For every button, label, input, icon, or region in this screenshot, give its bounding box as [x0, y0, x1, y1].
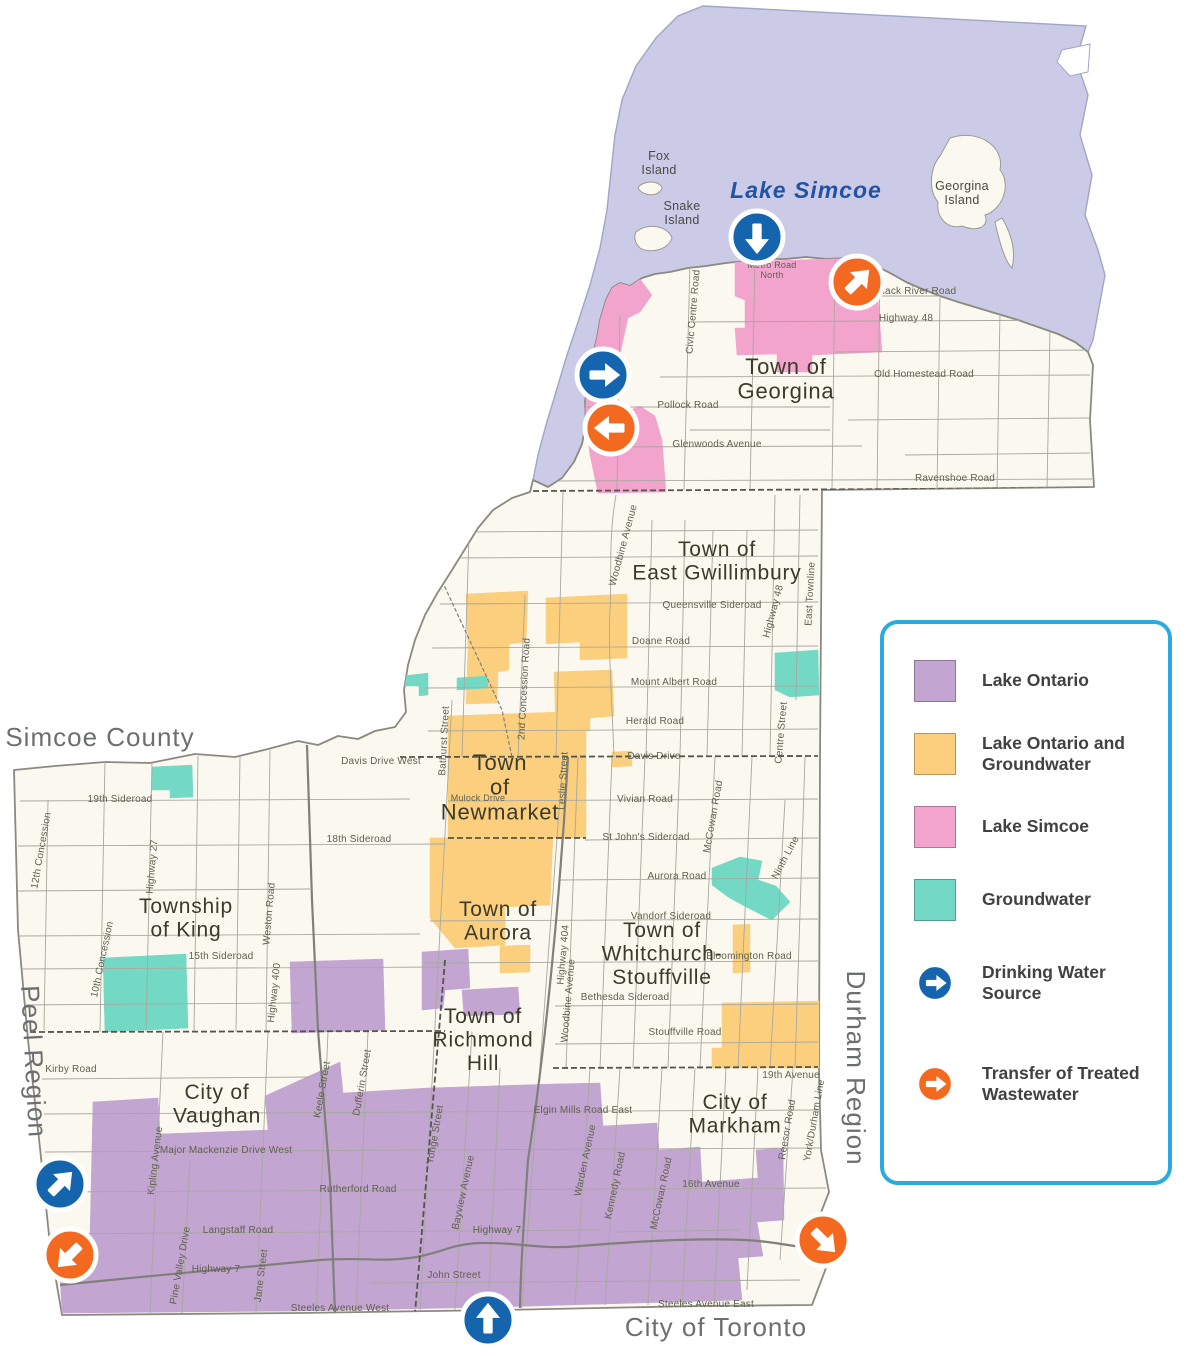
neighbouring-region-label: City of Toronto: [625, 1312, 807, 1342]
municipality-label: Town ofAurora: [459, 898, 537, 945]
transfer-of-treated-wastewater-arrow: [918, 1066, 953, 1101]
road-label: Davis Drive: [627, 751, 681, 762]
treated-wastewater-transfer-marker: [585, 402, 637, 454]
road-label: Ravenshoe Road: [915, 473, 995, 484]
lake-ontario-swatch: [914, 660, 956, 702]
road-label: Black River Road: [876, 286, 956, 297]
groundwater-swatch: [914, 879, 956, 921]
legend-label: Groundwater: [982, 889, 1091, 910]
road-label: John Street: [427, 1270, 480, 1281]
drinking-water-source-arrow: [918, 965, 953, 1000]
legend-item-lake-ontario: Lake Ontario: [914, 644, 1158, 717]
lake-ontario-source-area-area: [290, 959, 385, 1033]
road-label: Steeles Avenue East: [658, 1299, 754, 1310]
municipality-label: City ofVaughan: [173, 1081, 261, 1128]
road-label: St John's Sideroad: [602, 832, 689, 843]
road-label: Rutherford Road: [320, 1184, 397, 1195]
road-label: 18th Sideroad: [327, 834, 392, 845]
legend-label: Drinking WaterSource: [982, 962, 1106, 1003]
municipality-label: Townshipof King: [139, 895, 233, 942]
road-label: Elgin Mills Road East: [534, 1105, 633, 1116]
lake-ontario-and-groundwater-source-area-area: [500, 945, 530, 973]
neighbouring-region-label: Durham Region: [841, 970, 871, 1165]
road-label: Herald Road: [626, 716, 684, 727]
municipality-label: Town ofGeorgina: [738, 354, 835, 404]
legend-item-groundwater: Groundwater: [914, 863, 1158, 936]
road-label: Highway 7: [473, 1225, 522, 1236]
lake-ontario-and-groundwater-swatch: [914, 733, 956, 775]
map-stage: Metro RoadNorthBlack River RoadHighway 4…: [0, 0, 1200, 1357]
legend: Lake OntarioLake Ontario andGroundwaterL…: [880, 620, 1172, 1185]
road-label: Langstaff Road: [203, 1225, 273, 1236]
drinking-water-source-marker: [462, 1294, 514, 1346]
road-label: Bethesda Sideroad: [581, 992, 669, 1003]
lake-simcoe-swatch: [914, 806, 956, 848]
legend-item-lake-simcoe: Lake Simcoe: [914, 790, 1158, 863]
road-label: Queensville Sideroad: [662, 600, 761, 611]
road-label: Stouffville Road: [648, 1027, 721, 1038]
road-label: Vivian Road: [617, 794, 673, 805]
legend-label: Lake Ontario andGroundwater: [982, 733, 1125, 774]
road-label: 19th Avenue: [762, 1070, 820, 1081]
road-label: Old Homestead Road: [874, 369, 974, 380]
road-label: Davis Drive West: [341, 756, 421, 767]
road-label: Steeles Avenue West: [291, 1303, 390, 1314]
legend-label: Lake Ontario: [982, 670, 1089, 691]
road-label: Kirby Road: [45, 1064, 96, 1075]
transfer-of-treated-wastewater-icon: [914, 1063, 956, 1105]
road-label: Major Mackenzie Drive West: [160, 1145, 292, 1156]
drinking-water-source-marker: [731, 211, 783, 263]
road-label: Doane Road: [632, 636, 690, 647]
lake-simcoe-label: Lake Simcoe: [730, 177, 882, 203]
groundwater-source-area-area: [103, 954, 188, 1032]
lake-ontario-and-groundwater-source-area-area: [712, 1001, 822, 1068]
road-label: Glenwoods Avenue: [672, 439, 761, 450]
drinking-water-source-marker: [577, 349, 629, 401]
road-label: Pollock Road: [657, 400, 718, 411]
legend-item-drinking-water-source: Drinking WaterSource: [914, 946, 1158, 1019]
road-label: 15th Sideroad: [189, 951, 254, 962]
neighbouring-region-label: Simcoe County: [5, 722, 194, 752]
road-label: Aurora Road: [648, 871, 707, 882]
road-label: 16th Avenue: [682, 1179, 740, 1190]
road-label: Highway 48: [879, 313, 933, 324]
lake-ontario-and-groundwater-source-area-area: [733, 924, 750, 973]
island-label: SnakeIsland: [664, 199, 701, 227]
drinking-water-source-icon: [914, 962, 956, 1004]
road-label: 19th Sideroad: [88, 794, 153, 805]
road-label: Mount Albert Road: [631, 677, 717, 688]
legend-label: Lake Simcoe: [982, 816, 1089, 837]
road-label: Highway 7: [192, 1264, 241, 1275]
legend-label: Transfer of TreatedWastewater: [982, 1063, 1140, 1104]
legend-item-transfer-of-treated-wastewater: Transfer of TreatedWastewater: [914, 1047, 1158, 1120]
legend-item-lake-ontario-and-groundwater: Lake Ontario andGroundwater: [914, 717, 1158, 790]
